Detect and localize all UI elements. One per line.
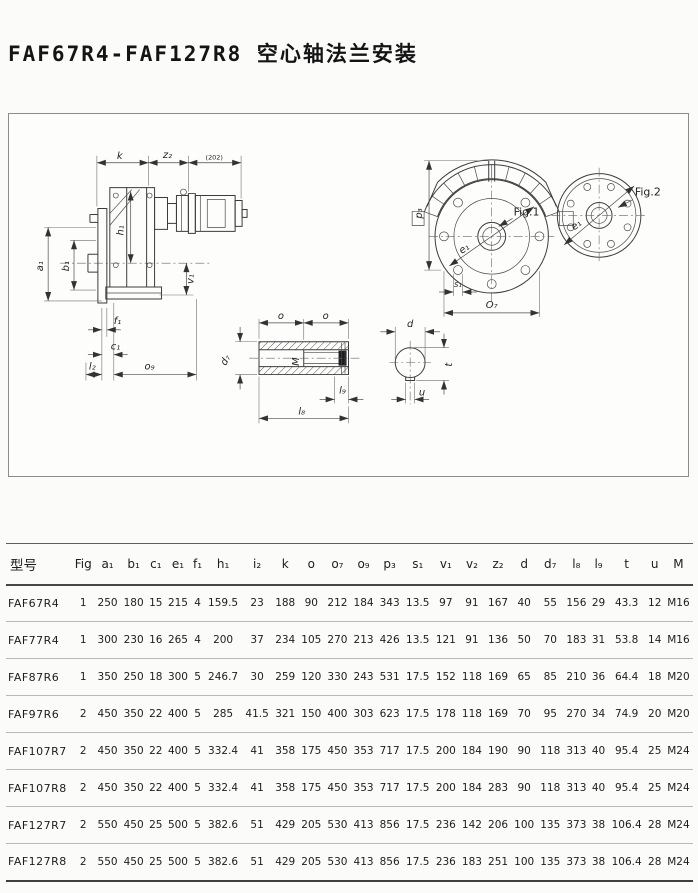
value-cell: 25 xyxy=(646,770,664,807)
column-header-5: e₁ xyxy=(165,544,191,585)
column-header-17: z₂ xyxy=(485,544,511,585)
column-header-8: i₂ xyxy=(242,544,272,585)
model-cell: FAF67R4 xyxy=(6,585,72,622)
value-cell: 22 xyxy=(147,770,165,807)
value-cell: 22 xyxy=(147,696,165,733)
model-cell: FAF107R8 xyxy=(6,770,72,807)
value-cell: 184 xyxy=(459,733,485,770)
value-cell: 313 xyxy=(563,733,589,770)
value-cell: 717 xyxy=(377,733,403,770)
value-cell: 5 xyxy=(191,659,204,696)
value-cell: 236 xyxy=(433,844,459,881)
value-cell: 41 xyxy=(242,733,272,770)
value-cell: 373 xyxy=(563,807,589,844)
model-cell: FAF77R4 xyxy=(6,622,72,659)
value-cell: 118 xyxy=(537,770,563,807)
value-cell: 270 xyxy=(563,696,589,733)
value-cell: M24 xyxy=(664,844,693,881)
b1-dim-label: b₁ xyxy=(61,261,72,271)
l8-dim-label: l₈ xyxy=(298,406,305,417)
value-cell: 25 xyxy=(147,844,165,881)
front-view-fig1: e₁ Fig.1 p₃ s₁ O₇ xyxy=(412,160,573,317)
table-row: FAF67R41250180152154159.5231889021218434… xyxy=(6,585,693,622)
d-dim-label: d xyxy=(407,319,414,330)
s1-dim-label: s₁ xyxy=(454,279,462,289)
page-title: FAF67R4-FAF127R8 空心轴法兰安装 xyxy=(8,38,418,68)
value-cell: 169 xyxy=(485,696,511,733)
value-cell: 178 xyxy=(433,696,459,733)
value-cell: 215 xyxy=(165,585,191,622)
u-dim-label: u xyxy=(419,387,425,398)
value-cell: 400 xyxy=(165,770,191,807)
value-cell: 531 xyxy=(377,659,403,696)
column-header-13: p₃ xyxy=(377,544,403,585)
value-cell: 5 xyxy=(191,733,204,770)
value-cell: 190 xyxy=(485,733,511,770)
value-cell: 95.4 xyxy=(608,770,646,807)
value-cell: M16 xyxy=(664,585,693,622)
table-row: FAF77R4130023016265420037234105270213426… xyxy=(6,622,693,659)
column-header-10: o xyxy=(298,544,324,585)
value-cell: 118 xyxy=(459,696,485,733)
value-cell: 270 xyxy=(324,622,350,659)
value-cell: 38 xyxy=(589,807,607,844)
column-header-18: d xyxy=(511,544,537,585)
value-cell: 65 xyxy=(511,659,537,696)
value-cell: 28 xyxy=(646,844,664,881)
value-cell: 70 xyxy=(537,622,563,659)
table-row: FAF107R82450350224005332.441358175450353… xyxy=(6,770,693,807)
p3-dim-label: p₃ xyxy=(414,208,425,219)
value-cell: 12 xyxy=(646,585,664,622)
value-cell: 4 xyxy=(191,585,204,622)
value-cell: 5 xyxy=(191,770,204,807)
value-cell: 90 xyxy=(511,770,537,807)
column-header-23: u xyxy=(646,544,664,585)
value-cell: 64.4 xyxy=(608,659,646,696)
value-cell: 17.5 xyxy=(403,659,433,696)
value-cell: 413 xyxy=(350,844,376,881)
value-cell: 30 xyxy=(242,659,272,696)
value-cell: M20 xyxy=(664,696,693,733)
value-cell: 136 xyxy=(485,622,511,659)
column-header-0: 型号 xyxy=(6,544,72,585)
value-cell: 382.6 xyxy=(204,807,242,844)
value-cell: 285 xyxy=(204,696,242,733)
model-cell: FAF97R6 xyxy=(6,696,72,733)
hollow-shaft-section: M o o d₇ l₉ l₈ xyxy=(219,311,364,423)
value-cell: 17.5 xyxy=(403,696,433,733)
value-cell: 200 xyxy=(433,733,459,770)
value-cell: 90 xyxy=(511,733,537,770)
value-cell: 343 xyxy=(377,585,403,622)
value-cell: 40 xyxy=(589,733,607,770)
value-cell: 38 xyxy=(589,844,607,881)
value-cell: 184 xyxy=(350,585,376,622)
value-cell: 283 xyxy=(485,770,511,807)
value-cell: 450 xyxy=(324,770,350,807)
value-cell: 37 xyxy=(242,622,272,659)
e1-fig1-label: e₁ xyxy=(457,242,472,257)
value-cell: 230 xyxy=(121,622,147,659)
value-cell: 426 xyxy=(377,622,403,659)
c1-dim-label: c₁ xyxy=(111,342,120,353)
column-header-11: o₇ xyxy=(324,544,350,585)
value-cell: 118 xyxy=(537,733,563,770)
value-cell: 321 xyxy=(272,696,298,733)
value-cell: 250 xyxy=(94,585,120,622)
column-header-16: v₂ xyxy=(459,544,485,585)
value-cell: 246.7 xyxy=(204,659,242,696)
k-dim-label: k xyxy=(117,151,124,162)
z2-dim-label: z₂ xyxy=(162,150,172,161)
value-cell: 13.5 xyxy=(403,622,433,659)
value-cell: 400 xyxy=(165,696,191,733)
value-cell: 500 xyxy=(165,844,191,881)
table-row: FAF127R72550450255005382.651429205530413… xyxy=(6,807,693,844)
value-cell: 100 xyxy=(511,844,537,881)
value-cell: 34 xyxy=(589,696,607,733)
value-cell: 142 xyxy=(459,807,485,844)
value-cell: 55 xyxy=(537,585,563,622)
value-cell: 450 xyxy=(94,770,120,807)
table-row: FAF107R72450350224005332.441358175450353… xyxy=(6,733,693,770)
side-view-dimensions: k z₂ (202) a₁ b₁ h₁ v₁ f₁ c₁ l₂ o₉ xyxy=(35,150,241,381)
value-cell: 85 xyxy=(537,659,563,696)
column-header-1: Fig xyxy=(72,544,94,585)
value-cell: 400 xyxy=(165,733,191,770)
spec-table-header-row: 型号Figa₁b₁c₁e₁f₁h₁i₂koo₇o₉p₃s₁v₁v₂z₂dd₇l₈… xyxy=(6,544,693,585)
l2-dim-label: l₂ xyxy=(89,362,96,373)
value-cell: 530 xyxy=(324,807,350,844)
value-cell: 18 xyxy=(646,659,664,696)
a1-dim-label: a₁ xyxy=(35,261,46,271)
ref-202-label: (202) xyxy=(206,154,223,162)
value-cell: 135 xyxy=(537,844,563,881)
value-cell: 210 xyxy=(563,659,589,696)
thread-m-label: M xyxy=(291,357,302,366)
value-cell: M24 xyxy=(664,733,693,770)
value-cell: 358 xyxy=(272,770,298,807)
t-dim-label: t xyxy=(444,362,455,367)
value-cell: 623 xyxy=(377,696,403,733)
value-cell: 159.5 xyxy=(204,585,242,622)
value-cell: 41 xyxy=(242,770,272,807)
value-cell: 105 xyxy=(298,622,324,659)
value-cell: 1 xyxy=(72,622,94,659)
flange-view-fig2: e₁ Fig.2 xyxy=(551,168,660,263)
column-header-21: l₉ xyxy=(589,544,607,585)
value-cell: 400 xyxy=(324,696,350,733)
technical-drawing: k z₂ (202) a₁ b₁ h₁ v₁ f₁ c₁ l₂ o₉ xyxy=(9,114,688,476)
value-cell: 74.9 xyxy=(608,696,646,733)
value-cell: 332.4 xyxy=(204,770,242,807)
value-cell: 25 xyxy=(147,807,165,844)
value-cell: 41.5 xyxy=(242,696,272,733)
value-cell: 43.3 xyxy=(608,585,646,622)
column-header-20: l₈ xyxy=(563,544,589,585)
column-header-12: o₉ xyxy=(350,544,376,585)
value-cell: 175 xyxy=(298,770,324,807)
value-cell: 300 xyxy=(165,659,191,696)
value-cell: 40 xyxy=(589,770,607,807)
column-header-3: b₁ xyxy=(121,544,147,585)
column-header-7: h₁ xyxy=(204,544,242,585)
value-cell: 353 xyxy=(350,770,376,807)
value-cell: 135 xyxy=(537,807,563,844)
value-cell: 2 xyxy=(72,733,94,770)
value-cell: 121 xyxy=(433,622,459,659)
value-cell: 330 xyxy=(324,659,350,696)
value-cell: M24 xyxy=(664,770,693,807)
value-cell: 20 xyxy=(646,696,664,733)
value-cell: 353 xyxy=(350,733,376,770)
value-cell: 118 xyxy=(459,659,485,696)
l9-dim-label: l₉ xyxy=(339,385,346,396)
value-cell: 91 xyxy=(459,622,485,659)
value-cell: 350 xyxy=(121,733,147,770)
model-cell: FAF107R7 xyxy=(6,733,72,770)
value-cell: 16 xyxy=(147,622,165,659)
value-cell: 300 xyxy=(94,622,120,659)
value-cell: 2 xyxy=(72,807,94,844)
o9-dim-label: o₉ xyxy=(145,362,155,373)
f1-dim-label: f₁ xyxy=(114,316,121,327)
value-cell: 251 xyxy=(485,844,511,881)
model-cell: FAF127R7 xyxy=(6,807,72,844)
value-cell: 350 xyxy=(121,696,147,733)
value-cell: 184 xyxy=(459,770,485,807)
value-cell: 429 xyxy=(272,807,298,844)
value-cell: 236 xyxy=(433,807,459,844)
value-cell: 13.5 xyxy=(403,585,433,622)
value-cell: 70 xyxy=(511,696,537,733)
value-cell: 29 xyxy=(589,585,607,622)
value-cell: 120 xyxy=(298,659,324,696)
value-cell: 31 xyxy=(589,622,607,659)
column-header-15: v₁ xyxy=(433,544,459,585)
value-cell: 91 xyxy=(459,585,485,622)
column-header-4: c₁ xyxy=(147,544,165,585)
value-cell: 450 xyxy=(94,733,120,770)
value-cell: 856 xyxy=(377,844,403,881)
table-row: FAF97R6245035022400528541.53211504003036… xyxy=(6,696,693,733)
value-cell: 100 xyxy=(511,807,537,844)
value-cell: 17.5 xyxy=(403,807,433,844)
column-header-6: f₁ xyxy=(191,544,204,585)
value-cell: 28 xyxy=(646,807,664,844)
value-cell: 429 xyxy=(272,844,298,881)
value-cell: 90 xyxy=(298,585,324,622)
drawing-panel: k z₂ (202) a₁ b₁ h₁ v₁ f₁ c₁ l₂ o₉ xyxy=(8,113,689,477)
value-cell: 243 xyxy=(350,659,376,696)
v1-dim-label: v₁ xyxy=(185,274,196,284)
column-header-19: d₇ xyxy=(537,544,563,585)
value-cell: M16 xyxy=(664,622,693,659)
value-cell: 200 xyxy=(204,622,242,659)
value-cell: 5 xyxy=(191,807,204,844)
value-cell: 180 xyxy=(121,585,147,622)
value-cell: 156 xyxy=(563,585,589,622)
value-cell: 40 xyxy=(511,585,537,622)
value-cell: M24 xyxy=(664,807,693,844)
value-cell: 95.4 xyxy=(608,733,646,770)
value-cell: 2 xyxy=(72,696,94,733)
column-header-2: a₁ xyxy=(94,544,120,585)
value-cell: 95 xyxy=(537,696,563,733)
value-cell: 169 xyxy=(485,659,511,696)
value-cell: 167 xyxy=(485,585,511,622)
value-cell: 212 xyxy=(324,585,350,622)
value-cell: 350 xyxy=(94,659,120,696)
spec-table-body: FAF67R41250180152154159.5231889021218434… xyxy=(6,585,693,881)
value-cell: 259 xyxy=(272,659,298,696)
value-cell: 450 xyxy=(324,733,350,770)
value-cell: 213 xyxy=(350,622,376,659)
value-cell: 550 xyxy=(94,807,120,844)
value-cell: 152 xyxy=(433,659,459,696)
value-cell: 550 xyxy=(94,844,120,881)
value-cell: 23 xyxy=(242,585,272,622)
value-cell: 717 xyxy=(377,770,403,807)
value-cell: 51 xyxy=(242,807,272,844)
value-cell: 250 xyxy=(121,659,147,696)
model-cell: FAF127R8 xyxy=(6,844,72,881)
value-cell: 53.8 xyxy=(608,622,646,659)
value-cell: 25 xyxy=(646,733,664,770)
value-cell: 450 xyxy=(94,696,120,733)
value-cell: 382.6 xyxy=(204,844,242,881)
value-cell: 200 xyxy=(433,770,459,807)
spec-table: 型号Figa₁b₁c₁e₁f₁h₁i₂koo₇o₉p₃s₁v₁v₂z₂dd₇l₈… xyxy=(6,543,693,882)
value-cell: 450 xyxy=(121,807,147,844)
value-cell: 175 xyxy=(298,733,324,770)
value-cell: 856 xyxy=(377,807,403,844)
column-header-24: M xyxy=(664,544,693,585)
value-cell: 18 xyxy=(147,659,165,696)
value-cell: 183 xyxy=(563,622,589,659)
value-cell: 106.4 xyxy=(608,807,646,844)
value-cell: 97 xyxy=(433,585,459,622)
value-cell: 17.5 xyxy=(403,844,433,881)
value-cell: 4 xyxy=(191,622,204,659)
value-cell: 450 xyxy=(121,844,147,881)
fig2-label: Fig.2 xyxy=(635,186,661,199)
o-left-dim-label: o xyxy=(278,311,284,322)
value-cell: 1 xyxy=(72,659,94,696)
value-cell: 373 xyxy=(563,844,589,881)
value-cell: 205 xyxy=(298,844,324,881)
value-cell: 51 xyxy=(242,844,272,881)
value-cell: 22 xyxy=(147,733,165,770)
value-cell: 413 xyxy=(350,807,376,844)
fig1-label: Fig.1 xyxy=(514,205,540,218)
spec-table-section: 型号Figa₁b₁c₁e₁f₁h₁i₂koo₇o₉p₃s₁v₁v₂z₂dd₇l₈… xyxy=(6,543,693,882)
value-cell: 234 xyxy=(272,622,298,659)
o7-dim-label: O₇ xyxy=(486,300,498,311)
column-header-22: t xyxy=(608,544,646,585)
value-cell: 2 xyxy=(72,770,94,807)
value-cell: 150 xyxy=(298,696,324,733)
value-cell: 106.4 xyxy=(608,844,646,881)
value-cell: 183 xyxy=(459,844,485,881)
model-cell: FAF87R6 xyxy=(6,659,72,696)
value-cell: M20 xyxy=(664,659,693,696)
value-cell: 332.4 xyxy=(204,733,242,770)
value-cell: 313 xyxy=(563,770,589,807)
value-cell: 188 xyxy=(272,585,298,622)
value-cell: 17.5 xyxy=(403,733,433,770)
value-cell: 500 xyxy=(165,807,191,844)
value-cell: 5 xyxy=(191,844,204,881)
value-cell: 358 xyxy=(272,733,298,770)
value-cell: 205 xyxy=(298,807,324,844)
value-cell: 5 xyxy=(191,696,204,733)
table-row: FAF87R61350250183005246.7302591203302435… xyxy=(6,659,693,696)
column-header-9: k xyxy=(272,544,298,585)
column-header-14: s₁ xyxy=(403,544,433,585)
value-cell: 303 xyxy=(350,696,376,733)
value-cell: 1 xyxy=(72,585,94,622)
value-cell: 350 xyxy=(121,770,147,807)
value-cell: 50 xyxy=(511,622,537,659)
value-cell: 14 xyxy=(646,622,664,659)
h1-dim-label: h₁ xyxy=(116,225,127,235)
value-cell: 36 xyxy=(589,659,607,696)
value-cell: 206 xyxy=(485,807,511,844)
value-cell: 265 xyxy=(165,622,191,659)
value-cell: 17.5 xyxy=(403,770,433,807)
side-view-drawing xyxy=(60,188,247,303)
table-row: FAF127R82550450255005382.651429205530413… xyxy=(6,844,693,881)
shaft-section-view: d t u xyxy=(380,319,455,405)
value-cell: 530 xyxy=(324,844,350,881)
value-cell: 2 xyxy=(72,844,94,881)
o-right-dim-label: o xyxy=(323,311,329,322)
d7-dim-label: d₇ xyxy=(219,353,234,367)
value-cell: 15 xyxy=(147,585,165,622)
